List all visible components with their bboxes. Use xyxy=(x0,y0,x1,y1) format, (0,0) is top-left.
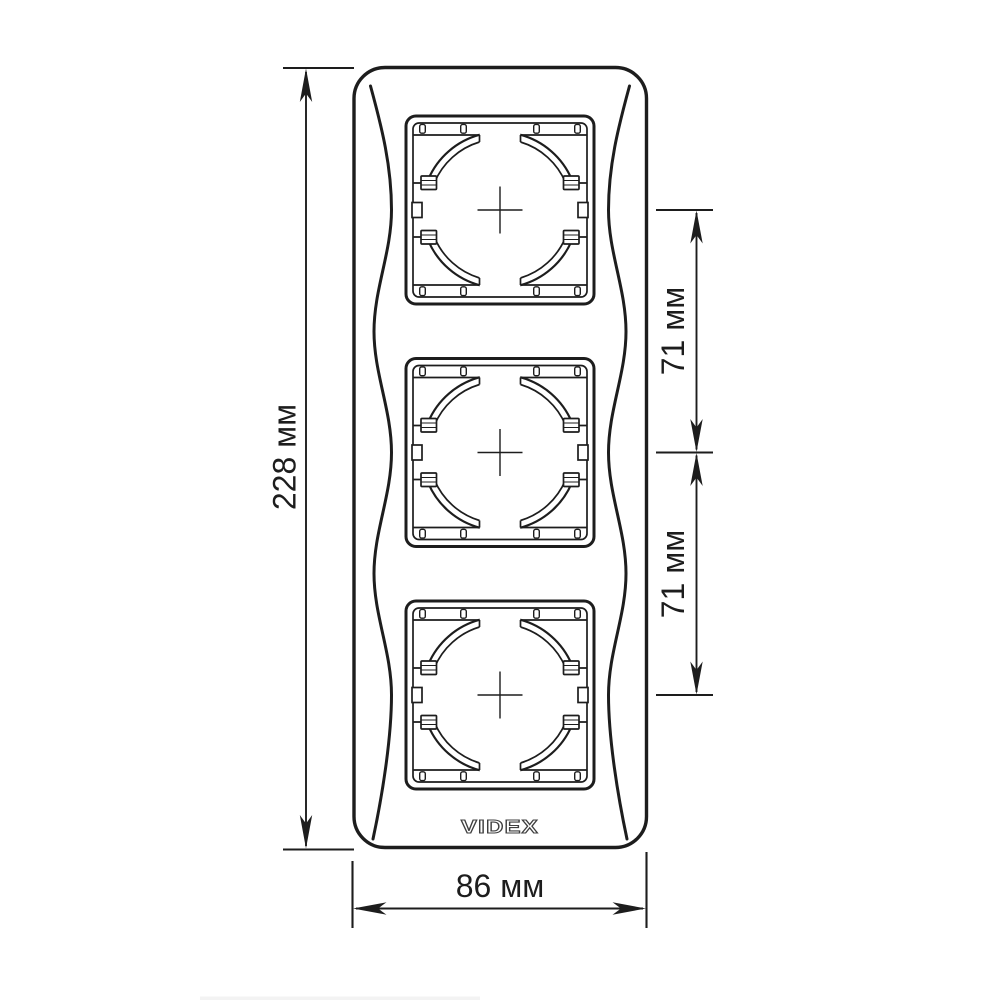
height-dimension-label: 228 мм xyxy=(267,404,303,510)
spacing-upper-label: 71 мм xyxy=(655,287,691,375)
frame-side-curve-left xyxy=(371,86,392,839)
width-dimension: 86 мм xyxy=(353,852,647,928)
width-dimension-label: 86 мм xyxy=(456,868,544,904)
spacing-dimension-lower: 71 мм xyxy=(655,453,703,695)
frame-side-curve-right xyxy=(609,86,630,839)
bottom-artifact-bar xyxy=(200,997,480,1000)
spacing-dimensions: 71 мм 71 мм xyxy=(655,210,713,695)
spacing-extension-ticks xyxy=(656,210,713,695)
height-dimension: 228 мм xyxy=(267,68,355,850)
technical-drawing: VIDEX 228 мм 71 мм 71 мм 86 мм xyxy=(0,0,1000,1000)
socket-module-2 xyxy=(406,359,594,547)
socket-module-3 xyxy=(406,601,594,789)
spacing-dimension-upper: 71 мм xyxy=(655,211,703,453)
spacing-lower-label: 71 мм xyxy=(655,530,691,618)
socket-module-1 xyxy=(406,116,594,304)
videx-logo: VIDEX xyxy=(461,817,539,837)
